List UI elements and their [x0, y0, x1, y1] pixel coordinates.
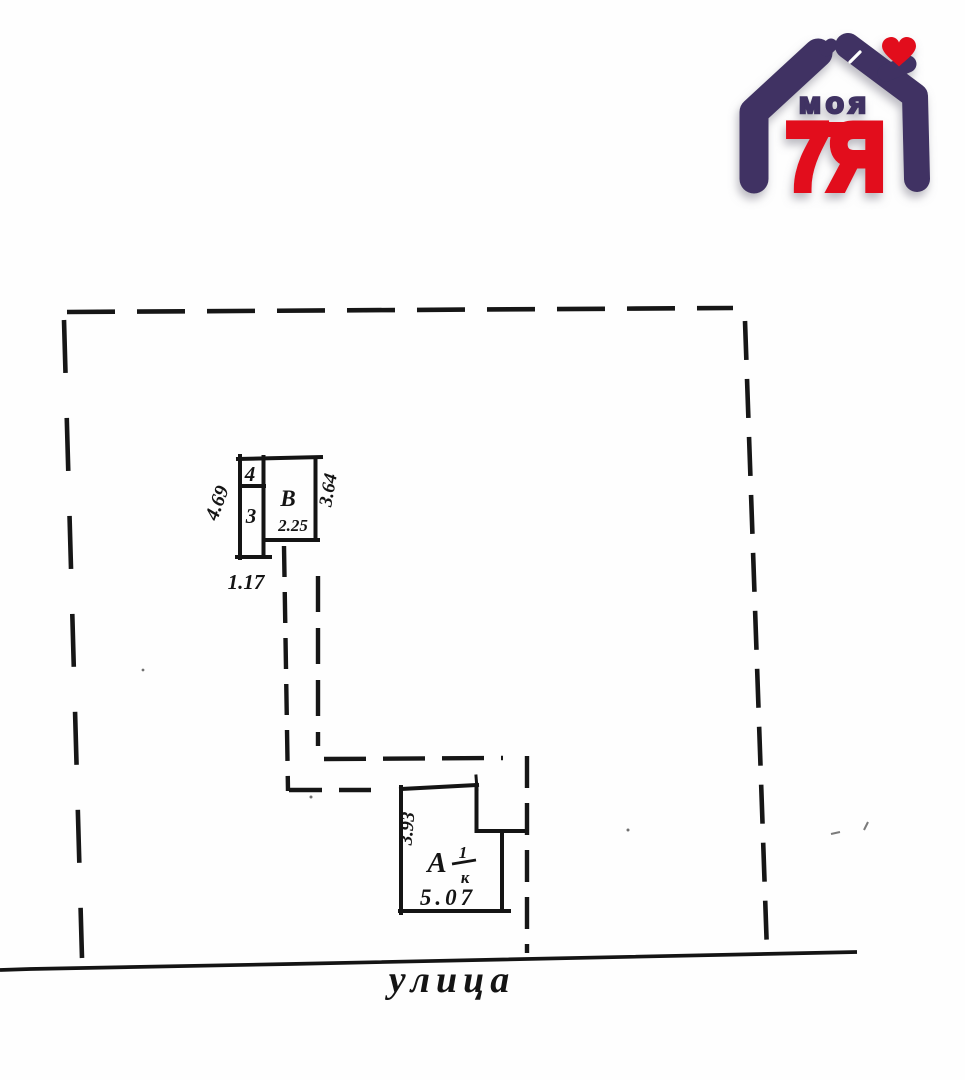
svg-text:А: А [425, 847, 446, 879]
svg-text:В: В [279, 486, 295, 511]
svg-text:2.25: 2.25 [277, 516, 308, 535]
svg-text:3: 3 [245, 504, 257, 528]
svg-text:5.07: 5.07 [420, 885, 476, 910]
svg-text:4: 4 [244, 462, 256, 486]
svg-text:1: 1 [459, 843, 468, 862]
svg-text:улица: улица [385, 959, 516, 1001]
svg-text:3.93: 3.93 [396, 811, 420, 847]
svg-text:1.17: 1.17 [228, 570, 266, 594]
svg-text:7Я: 7Я [786, 104, 885, 209]
